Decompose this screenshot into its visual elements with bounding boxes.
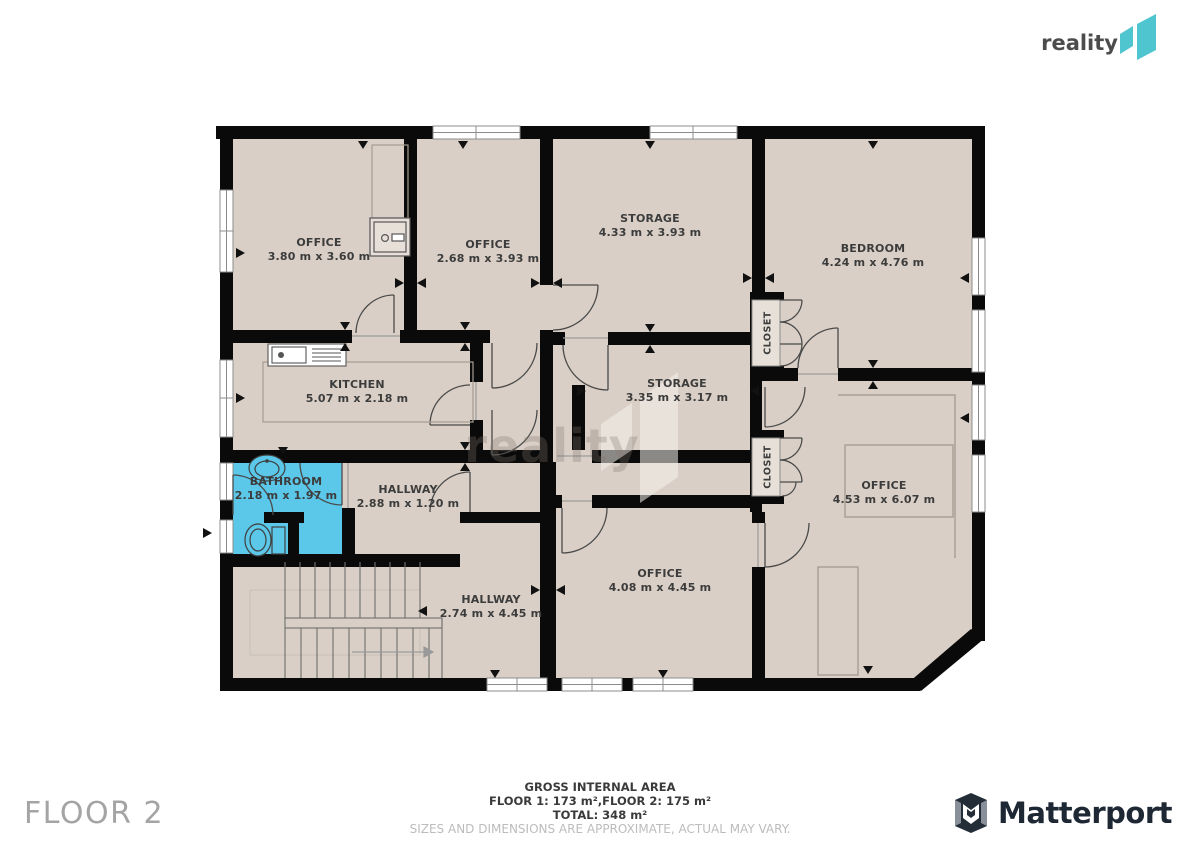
window [972, 385, 985, 440]
window [220, 520, 233, 553]
room-label-closet-2: CLOSET [763, 445, 774, 489]
watermark-text: reality [464, 419, 639, 473]
floorplan-page: reality OFFICE 3.80 m x 3.60 m OFFICE 2.… [0, 0, 1200, 850]
gia-disclaimer: SIZES AND DIMENSIONS ARE APPROXIMATE, AC… [300, 822, 900, 837]
kitchen-sink-icon [268, 344, 346, 366]
matterport-logo-icon [953, 793, 989, 833]
room-dims: 4.08 m x 4.45 m [609, 581, 712, 594]
room-label-hallway-1: HALLWAY 2.88 m x 1.20 m [357, 483, 460, 511]
room-dims: 3.80 m x 3.60 m [268, 250, 371, 263]
toilet-icon [245, 524, 285, 556]
room-dims: 4.33 m x 3.93 m [599, 226, 702, 239]
room-dims: 4.53 m x 6.07 m [833, 493, 936, 506]
window [972, 310, 985, 372]
room-label-office-4: OFFICE 4.08 m x 4.45 m [609, 567, 712, 595]
window [220, 360, 233, 437]
room-label-hallway-2: HALLWAY 2.74 m x 4.45 m [440, 593, 543, 621]
gia-title: GROSS INTERNAL AREA [300, 780, 900, 794]
room-name: KITCHEN [329, 378, 385, 391]
matterport-logo-text: Matterport [998, 796, 1172, 830]
room-dims: 2.74 m x 4.45 m [440, 607, 543, 620]
room-dims: 3.35 m x 3.17 m [626, 391, 729, 404]
room-name: OFFICE [465, 238, 510, 251]
room-label-office-2: OFFICE 2.68 m x 3.93 m [437, 238, 540, 266]
room-name: OFFICE [637, 567, 682, 580]
room-name: BATHROOM [250, 475, 322, 488]
room-label-office-3: OFFICE 4.53 m x 6.07 m [833, 479, 936, 507]
room-dims: 2.88 m x 1.20 m [357, 497, 460, 510]
room-name: HALLWAY [461, 593, 520, 606]
window [650, 126, 737, 139]
window [487, 678, 547, 691]
room-name: OFFICE [861, 479, 906, 492]
room-dims: 4.24 m x 4.76 m [822, 256, 925, 269]
water-heater-icon [370, 218, 410, 256]
room-label-kitchen: KITCHEN 5.07 m x 2.18 m [306, 378, 409, 406]
window [562, 678, 622, 691]
room-name: HALLWAY [378, 483, 437, 496]
room-name: STORAGE [647, 377, 707, 390]
reality11-logo: reality [1041, 14, 1162, 66]
room-dims: 5.07 m x 2.18 m [306, 392, 409, 405]
window [972, 455, 985, 512]
reality11-logo-icon [1118, 14, 1162, 66]
room-label-storage-2: STORAGE 3.35 m x 3.17 m [626, 377, 729, 405]
room-dims: 2.18 m x 1.97 m [235, 489, 338, 502]
floor-label: FLOOR 2 [24, 796, 164, 831]
room-label-bedroom: BEDROOM 4.24 m x 4.76 m [822, 242, 925, 270]
room-label-bathroom: BATHROOM 2.18 m x 1.97 m [235, 475, 338, 503]
room-name: BEDROOM [841, 242, 906, 255]
gia-floors: FLOOR 1: 173 m²,FLOOR 2: 175 m² [300, 794, 900, 808]
room-name: OFFICE [296, 236, 341, 249]
gross-internal-area: GROSS INTERNAL AREA FLOOR 1: 173 m²,FLOO… [300, 780, 900, 837]
window [433, 126, 520, 139]
reality11-logo-text: reality [1041, 20, 1118, 66]
window [972, 238, 985, 295]
room-label-storage-1: STORAGE 4.33 m x 3.93 m [599, 212, 702, 240]
window [220, 463, 233, 500]
room-label-closet-1: CLOSET [763, 311, 774, 355]
window [633, 678, 693, 691]
window [220, 190, 233, 272]
room-dims: 2.68 m x 3.93 m [437, 252, 540, 265]
gia-total: TOTAL: 348 m² [300, 808, 900, 822]
room-name: STORAGE [620, 212, 680, 225]
room-label-office-1: OFFICE 3.80 m x 3.60 m [268, 236, 371, 264]
matterport-logo: Matterport [953, 793, 1172, 833]
